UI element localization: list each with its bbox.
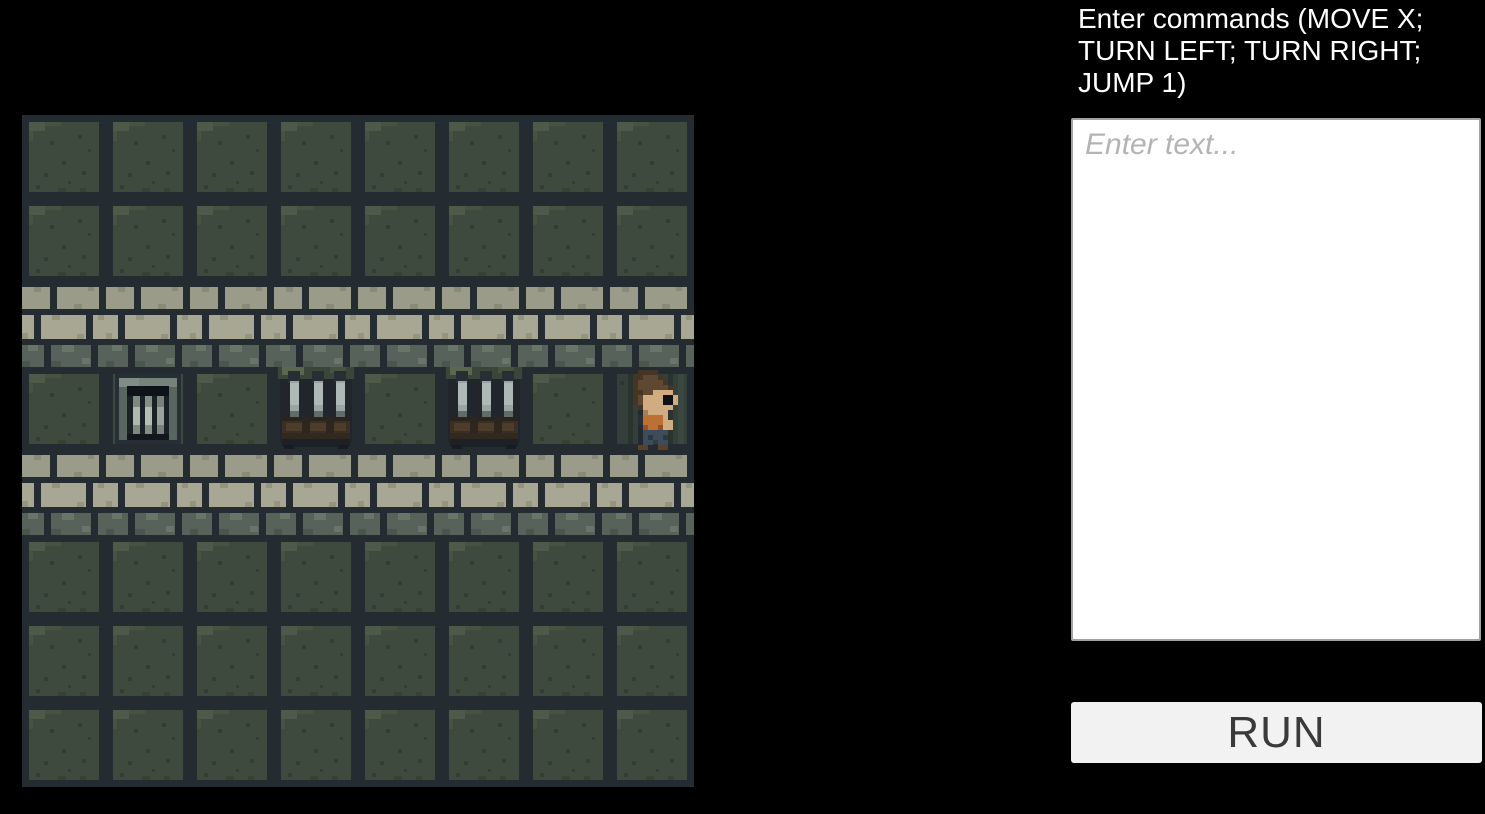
tile-floor: [526, 619, 610, 703]
tile-wall: [274, 283, 358, 367]
tile-floor: [274, 703, 358, 787]
game-viewport: [22, 115, 694, 787]
tile-wall: [106, 283, 190, 367]
tile-floor: [358, 367, 442, 451]
tile-wall: [22, 451, 106, 535]
tile-floor: [358, 115, 442, 199]
tile-floor: [106, 115, 190, 199]
tile-floor: [22, 703, 106, 787]
tile-floor: [442, 535, 526, 619]
tile-floor: [22, 619, 106, 703]
tile-wall: [610, 283, 694, 367]
tile-floor: [190, 535, 274, 619]
player-sprite: [610, 367, 694, 451]
tile-crate: [274, 367, 358, 451]
tile-floor: [274, 619, 358, 703]
tile-floor: [526, 367, 610, 451]
tile-floor: [442, 115, 526, 199]
tile-floor: [526, 535, 610, 619]
tile-floor: [526, 115, 610, 199]
tile-floor: [274, 115, 358, 199]
tile-floor: [442, 703, 526, 787]
tile-wall: [274, 451, 358, 535]
tile-floor: [22, 199, 106, 283]
tile-floor: [106, 703, 190, 787]
tile-floor: [190, 703, 274, 787]
tile-floor: [190, 199, 274, 283]
tile-floor: [610, 535, 694, 619]
tile-wall: [610, 451, 694, 535]
tile-floor: [526, 199, 610, 283]
tile-floor: [22, 535, 106, 619]
tile-floor: [442, 619, 526, 703]
tile-wall: [22, 283, 106, 367]
tile-floor: [22, 115, 106, 199]
tile-floor: [22, 367, 106, 451]
tile-floor: [610, 703, 694, 787]
tile-floor: [190, 619, 274, 703]
tile-floor: [274, 199, 358, 283]
tile-floor: [610, 199, 694, 283]
tile-wall: [106, 451, 190, 535]
tile-floor: [358, 535, 442, 619]
command-input[interactable]: [1071, 118, 1481, 641]
tile-wall: [442, 451, 526, 535]
tile-floor: [358, 619, 442, 703]
command-instructions: Enter commands (MOVE X; TURN LEFT; TURN …: [1078, 3, 1463, 99]
tile-crate: [442, 367, 526, 451]
tile-wall: [190, 283, 274, 367]
tile-wall: [190, 451, 274, 535]
tile-floor: [358, 703, 442, 787]
tile-floor: [106, 199, 190, 283]
tile-floor: [610, 115, 694, 199]
tile-wall: [358, 451, 442, 535]
tile-floor: [106, 535, 190, 619]
tile-floor: [106, 619, 190, 703]
tile-wall: [358, 283, 442, 367]
tile-floor: [274, 535, 358, 619]
tile-wall: [442, 283, 526, 367]
tile-floor: [190, 367, 274, 451]
tile-wall: [526, 283, 610, 367]
tile-floor: [358, 199, 442, 283]
tile-floor: [610, 619, 694, 703]
tile-floor: [442, 199, 526, 283]
tile-wall: [526, 451, 610, 535]
tile-gate: [106, 367, 190, 451]
tile-floor: [190, 115, 274, 199]
run-button[interactable]: RUN: [1071, 702, 1482, 763]
tile-floor: [526, 703, 610, 787]
